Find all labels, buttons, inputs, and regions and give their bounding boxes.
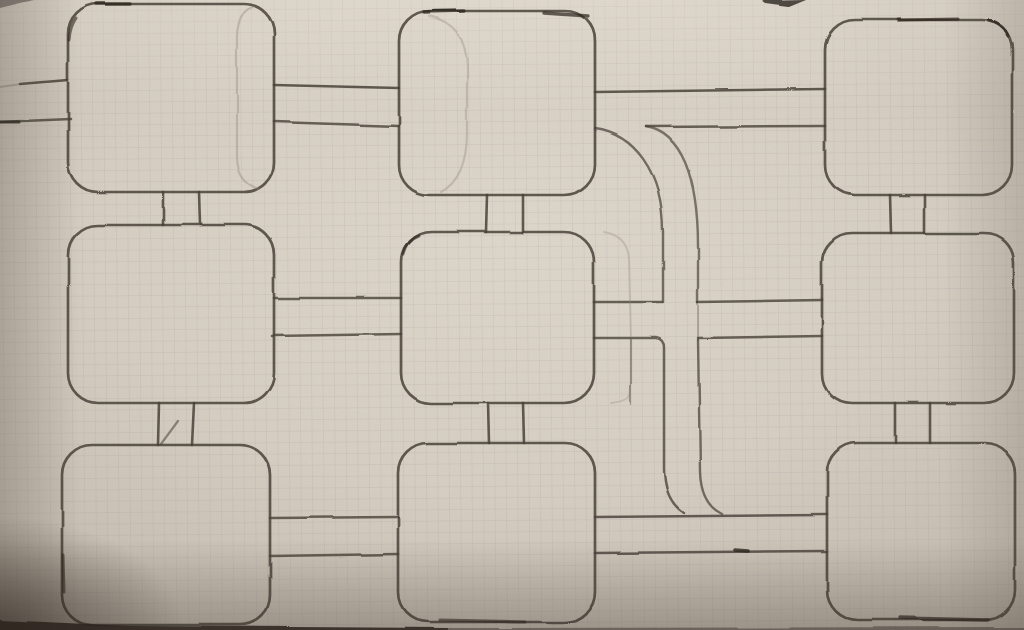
bottom-left-corner-shadow [0, 0, 1024, 630]
hand-drawn-diagram-canvas [0, 0, 1024, 630]
graph-paper-photo [0, 0, 1024, 630]
